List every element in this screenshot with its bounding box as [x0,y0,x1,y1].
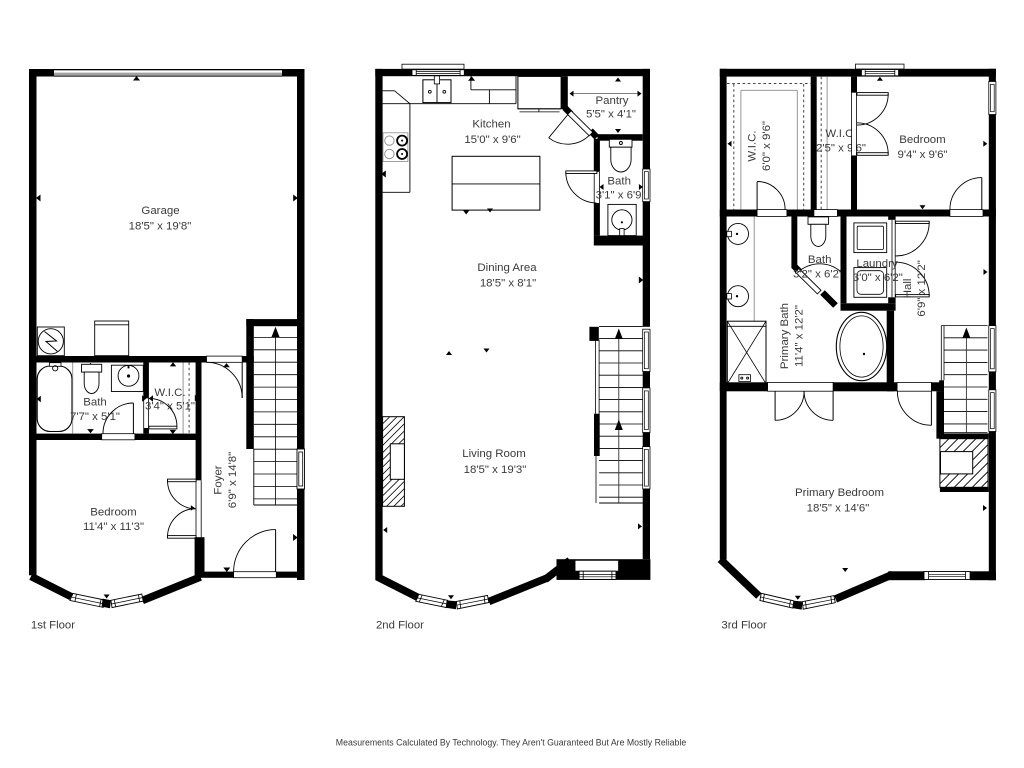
svg-text:Hall: Hall [902,279,914,299]
svg-text:9'4" x 9'6": 9'4" x 9'6" [897,149,947,161]
svg-text:6'9" x 14'8": 6'9" x 14'8" [227,452,239,508]
svg-text:11'4" x 11'3": 11'4" x 11'3" [83,521,144,533]
svg-text:Primary Bedroom: Primary Bedroom [795,487,884,499]
svg-text:1st Floor: 1st Floor [31,620,75,632]
svg-text:Bedroom: Bedroom [90,507,136,519]
svg-text:6'0" x 9'6": 6'0" x 9'6" [761,121,773,171]
svg-text:Bath: Bath [607,175,631,187]
svg-text:6'9" x 12'2": 6'9" x 12'2" [916,260,928,316]
svg-text:Bedroom: Bedroom [899,134,945,146]
svg-text:7'7" x 5'1": 7'7" x 5'1" [70,411,120,423]
svg-text:Garage: Garage [141,205,179,217]
svg-text:Foyer: Foyer [213,465,225,494]
svg-text:15'0" x 9'6": 15'0" x 9'6" [464,134,520,146]
svg-text:Pantry: Pantry [595,95,628,107]
svg-text:3'4" x 5'1": 3'4" x 5'1" [145,400,195,412]
svg-text:18'5" x 14'6": 18'5" x 14'6" [807,503,870,515]
svg-text:18'5" x 8'1": 18'5" x 8'1" [480,278,536,290]
svg-text:W.I.C.: W.I.C. [747,130,759,161]
svg-text:Kitchen: Kitchen [472,119,510,131]
svg-text:Dining Area: Dining Area [477,262,537,274]
svg-text:3'2" x 6'2": 3'2" x 6'2" [793,269,843,281]
svg-text:3rd Floor: 3rd Floor [721,620,767,632]
svg-text:Measurements Calculated By Tec: Measurements Calculated By Technology. T… [336,738,687,748]
svg-text:11'4" x 12'2": 11'4" x 12'2" [794,305,806,367]
svg-text:3'0" x 6'2": 3'0" x 6'2" [853,272,903,284]
svg-text:5'5" x 4'1": 5'5" x 4'1" [586,109,636,121]
svg-text:Laundry: Laundry [856,258,898,270]
svg-text:18'5" x 19'3": 18'5" x 19'3" [464,464,527,476]
svg-text:3'1" x 6'9": 3'1" x 6'9" [596,190,646,202]
svg-text:W.I.C.: W.I.C. [154,387,185,399]
svg-text:Living Room: Living Room [462,448,526,460]
svg-text:18'5" x 19'8": 18'5" x 19'8" [129,221,192,233]
svg-text:Bath: Bath [808,254,832,266]
svg-text:Bath: Bath [83,397,107,409]
svg-text:Primary Bath: Primary Bath [779,303,791,369]
svg-text:2nd Floor: 2nd Floor [376,620,424,632]
